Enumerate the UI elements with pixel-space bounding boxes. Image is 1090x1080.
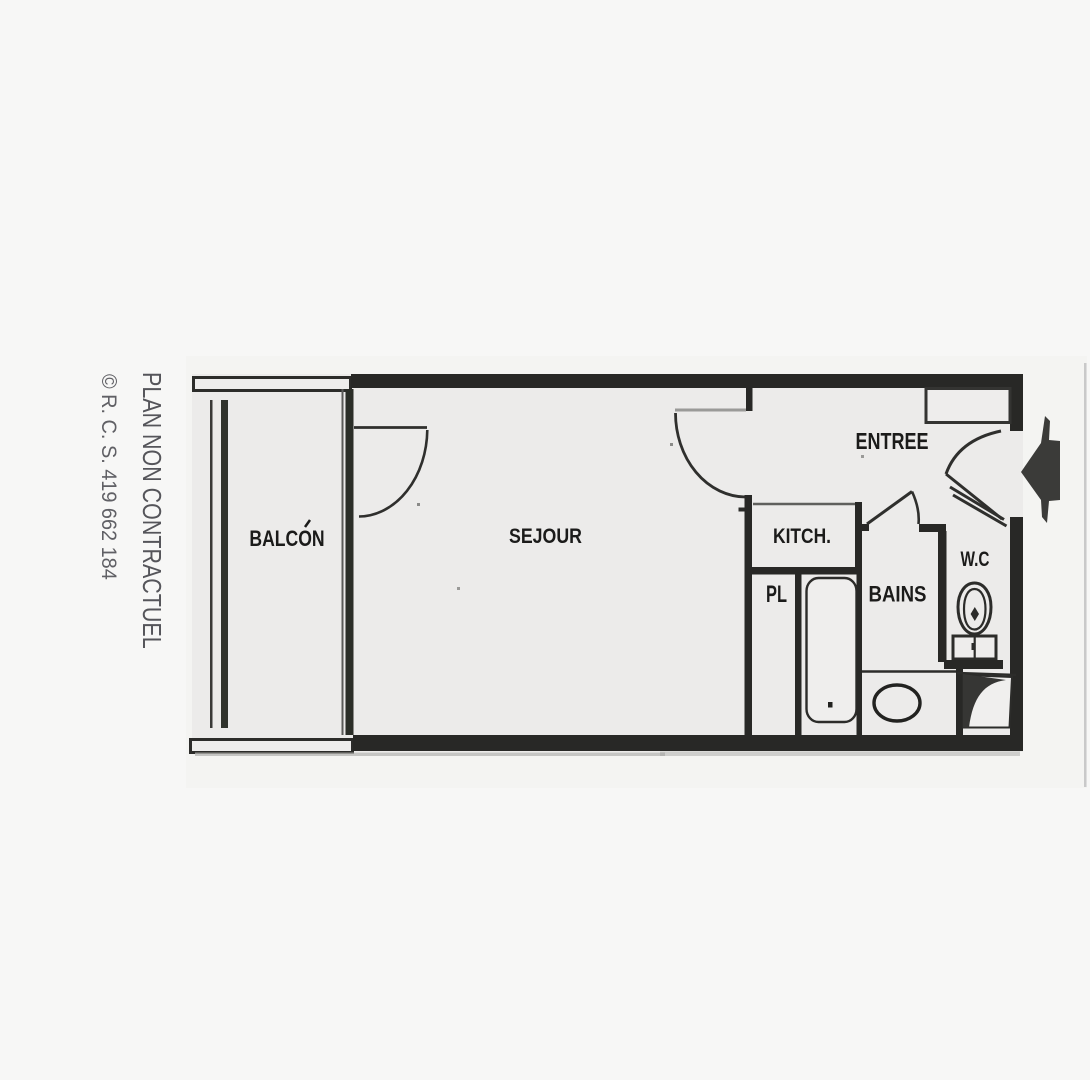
svg-text:KITCH.: KITCH.	[773, 524, 831, 548]
svg-text:SEJOUR: SEJOUR	[509, 524, 582, 548]
svg-text:W.C: W.C	[961, 546, 990, 570]
svg-text:PL: PL	[766, 581, 787, 608]
svg-text:PLAN NON CONTRACTUEL: PLAN NON CONTRACTUEL	[136, 372, 165, 649]
svg-text:BALCON: BALCON	[249, 527, 324, 551]
svg-text:ENTREE: ENTREE	[856, 429, 929, 455]
svg-text:BAINS: BAINS	[869, 583, 927, 607]
svg-text:© R. C. S. 419 662 184: © R. C. S. 419 662 184	[97, 374, 121, 580]
